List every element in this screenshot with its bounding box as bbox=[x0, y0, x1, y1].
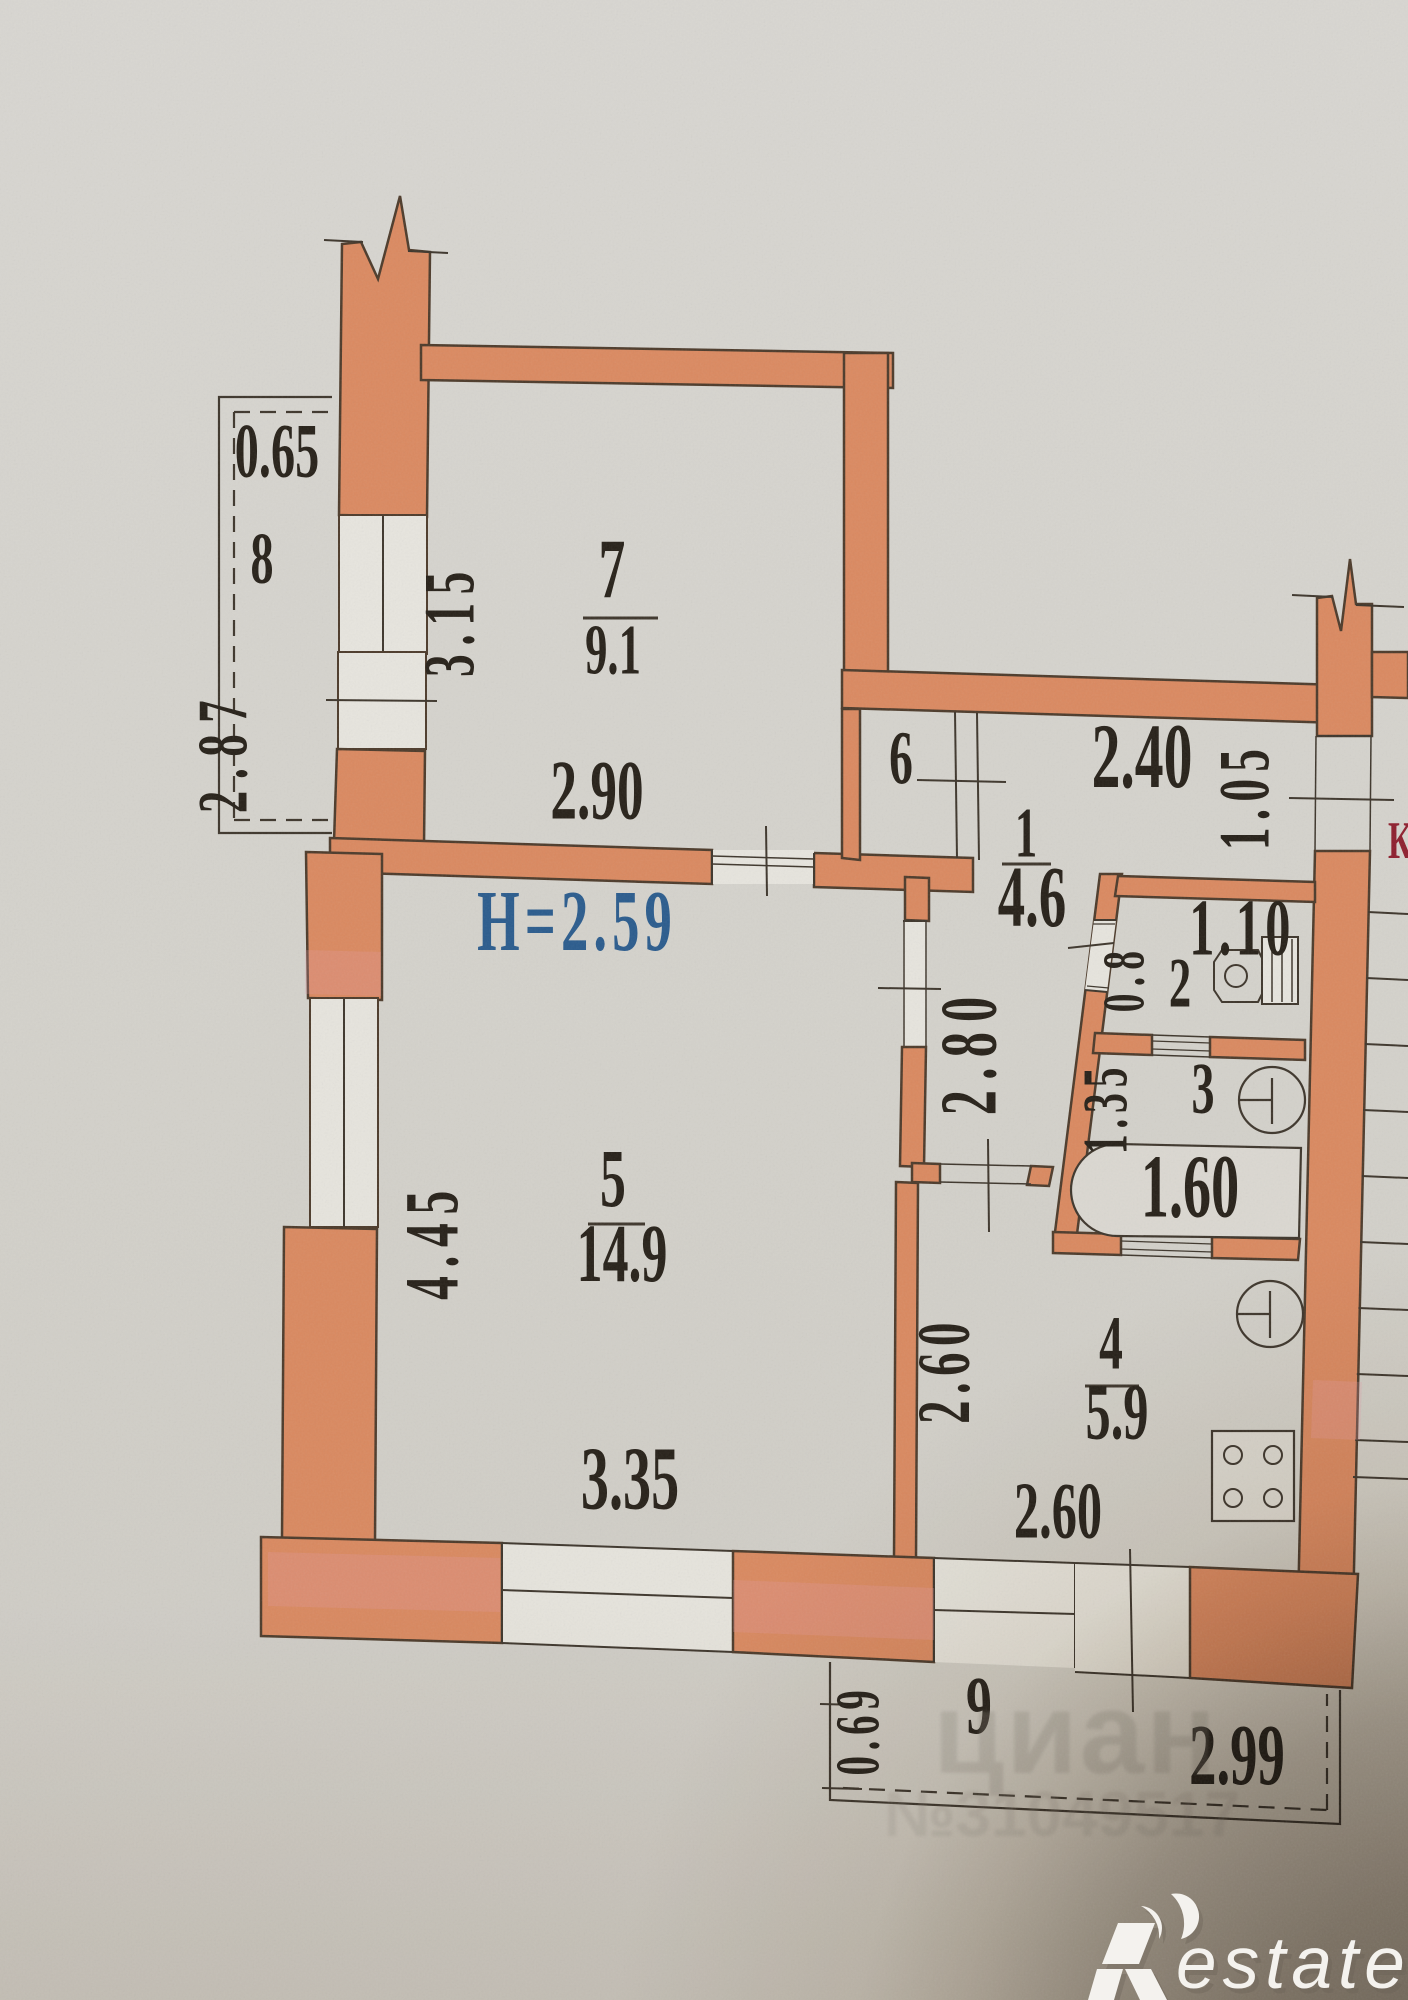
svg-text:estate: estate bbox=[1176, 1923, 1408, 2000]
